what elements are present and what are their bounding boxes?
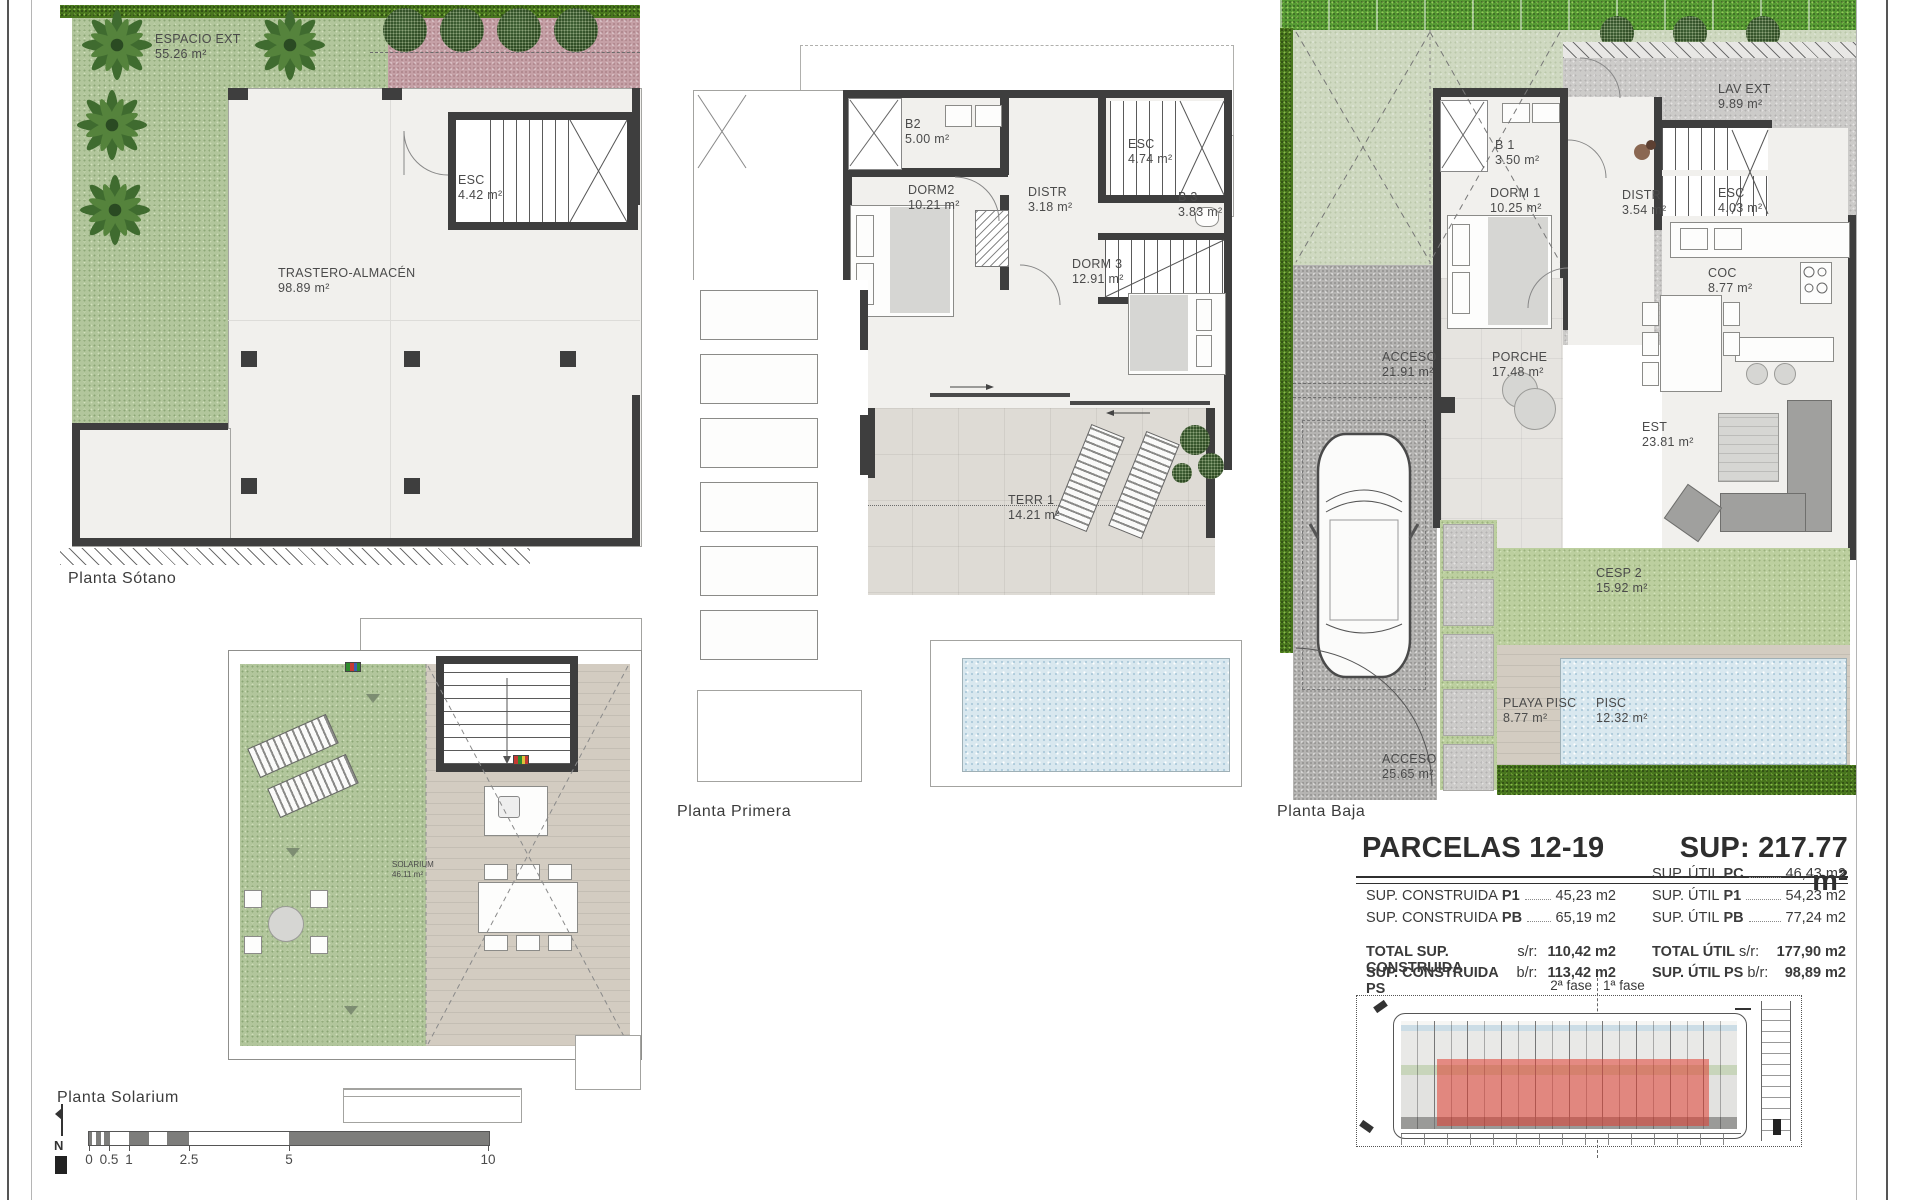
paver	[1443, 579, 1494, 626]
bush-icon	[440, 8, 484, 52]
stair-treads	[1662, 128, 1732, 170]
shower	[848, 98, 902, 170]
storage-box	[700, 418, 818, 468]
wall	[72, 423, 80, 545]
bush-icon	[383, 8, 427, 52]
phase-label-left: 2ª fase	[1520, 978, 1592, 993]
oven	[1714, 228, 1742, 250]
room-label: CESP 215.92 m²	[1596, 566, 1648, 596]
floor-joint	[228, 320, 640, 321]
stepping-stones	[1443, 524, 1494, 791]
chair	[310, 890, 328, 908]
scale-label: 1	[125, 1152, 133, 1167]
summary-totals-right: TOTAL ÚTIL s/r: 177,90 m2 SUP. ÚTIL PS b…	[1652, 944, 1846, 986]
context-box-line	[343, 1096, 520, 1097]
sliding-door	[1070, 401, 1210, 405]
column	[241, 478, 257, 494]
chair	[310, 936, 328, 954]
section-hatch	[60, 548, 530, 565]
context-box	[575, 1035, 641, 1090]
palm-icon	[73, 168, 157, 252]
neighbor-room	[693, 90, 845, 282]
room-label: DORM 312.91 m²	[1072, 257, 1124, 287]
driveway-dash	[1293, 383, 1437, 384]
paver	[1443, 689, 1494, 736]
site-glyph	[1373, 1000, 1388, 1013]
chair	[1642, 302, 1659, 326]
stair-landing	[1180, 101, 1224, 195]
scale-segment	[167, 1132, 189, 1145]
scale-label: 2.5	[180, 1152, 199, 1167]
wall	[1433, 278, 1441, 528]
room-label: B 13.50 m²	[1495, 138, 1539, 168]
context-box	[343, 1088, 522, 1123]
roof-strip	[360, 618, 642, 652]
gravel-dashed-line	[370, 52, 640, 53]
pillow	[856, 215, 874, 257]
wall	[382, 88, 402, 100]
bed-blanket	[1488, 217, 1548, 325]
summary-total-row: SUP. ÚTIL PS b/r: 98,89 m2	[1652, 965, 1846, 986]
plan-baja: LAV EXT9.89 m² B 13.50 m² DORM 110.25 m²…	[1280, 0, 1856, 800]
dining-table	[478, 882, 578, 933]
plan-primera: B25.00 m² DORM210.21 m² DISTR3.18 m² ESC…	[650, 35, 1245, 795]
summary-row: SUP. CONSTRUIDA P1 45,23 m2	[1366, 888, 1616, 910]
roof-hatch	[1563, 42, 1856, 58]
room-label: DISTR3.54 m²	[1622, 188, 1666, 218]
chair	[1642, 362, 1659, 386]
pool	[962, 658, 1230, 772]
scale-tick	[109, 1145, 110, 1151]
summary-row: SUP. CONSTRUIDA PB 65,19 m2	[1366, 910, 1616, 932]
room-label: DORM210.21 m²	[908, 183, 960, 213]
scale-tick	[488, 1145, 489, 1151]
room-label: TERR 114.21 m²	[1008, 493, 1060, 523]
bush-row	[383, 8, 598, 52]
pillow	[1452, 224, 1470, 266]
room-label: LAV EXT9.89 m²	[1718, 82, 1771, 112]
paver	[1443, 524, 1494, 571]
site-road-marker	[1773, 1119, 1781, 1135]
column	[560, 351, 576, 367]
room-label: B 33.83 m²	[1178, 190, 1222, 220]
plant-icon	[1172, 463, 1192, 483]
wall	[860, 290, 868, 350]
sheet-border-right-inner	[1856, 0, 1857, 1200]
chair	[484, 935, 508, 951]
summary-row: SUP. ÚTIL P1 54,23 m2	[1652, 888, 1846, 910]
chair	[244, 936, 262, 954]
room-label: TRASTERO-ALMACÉN98.89 m²	[278, 266, 415, 296]
shower	[1440, 100, 1488, 172]
sink-icon	[498, 796, 520, 818]
storage-boxes	[700, 290, 818, 660]
chair	[548, 864, 572, 880]
wall	[72, 538, 640, 546]
scale-segment	[96, 1132, 101, 1145]
marker-icon	[345, 662, 361, 672]
room-label: DORM 110.25 m²	[1490, 186, 1542, 216]
sheet-border-left-inner	[31, 0, 32, 1200]
site-arrow	[1735, 1008, 1751, 1010]
chair	[548, 935, 572, 951]
scale-segment	[104, 1132, 110, 1145]
paver	[1443, 744, 1494, 791]
sofa	[1720, 493, 1806, 532]
room-label: ESPACIO EXT55.26 m²	[155, 32, 241, 62]
column	[1441, 397, 1455, 413]
hob	[1800, 262, 1832, 304]
stair-landing	[1732, 128, 1768, 170]
wall	[1098, 98, 1106, 198]
plan-solarium: SOLARIUM46.11 m²	[226, 618, 640, 1123]
column	[241, 351, 257, 367]
paver	[1443, 634, 1494, 681]
summary-row: SUP. ÚTIL PB 77,24 m2	[1652, 910, 1846, 932]
chair	[1723, 302, 1740, 326]
site-unit	[1401, 1021, 1434, 1129]
hedge-bottom	[1497, 765, 1856, 795]
sliding-door	[930, 393, 1070, 397]
scale-bar: 0 0.5 1 2.5 5 10	[88, 1131, 490, 1146]
room-label: ESC4.03 m²	[1718, 186, 1762, 216]
scale-label: 5	[285, 1152, 293, 1167]
room-label: EST23.81 m²	[1642, 420, 1694, 450]
basement-floor-ext	[72, 428, 231, 547]
wall	[632, 395, 640, 545]
scale-segment	[89, 1132, 92, 1145]
stool	[1746, 363, 1768, 385]
chair	[244, 890, 262, 908]
storage-box	[700, 546, 818, 596]
room-label: SOLARIUM46.11 m²	[392, 860, 434, 879]
plant-icon	[1180, 425, 1210, 455]
phase-label-right: 1ª fase	[1603, 978, 1645, 993]
room-label: ESC4.42 m²	[458, 173, 502, 203]
floorplan-sheet: ESPACIO EXT55.26 m² ESC4.42 m² TRASTERO-…	[0, 0, 1920, 1200]
scale-segment	[129, 1132, 149, 1145]
scale-tick	[89, 1145, 90, 1151]
pillow	[1196, 335, 1212, 367]
room-label: PISC12.32 m²	[1596, 696, 1648, 726]
north-flag	[55, 1108, 62, 1120]
north-arrow: N	[48, 1100, 78, 1190]
room-label: DISTR3.18 m²	[1028, 185, 1072, 215]
wall	[1848, 215, 1856, 560]
site-plan	[1356, 995, 1802, 1147]
plan-caption-primera: Planta Primera	[677, 803, 791, 821]
room-label: ACCESO21.91 m²	[1382, 350, 1437, 380]
scale-label: 0	[85, 1152, 93, 1167]
wall	[1224, 90, 1232, 470]
room-label: ESC4.74 m²	[1128, 137, 1172, 167]
room-label: B25.00 m²	[905, 117, 949, 147]
bed-blanket	[1130, 295, 1188, 371]
marker-icon	[513, 755, 529, 765]
kitchen-island	[1735, 337, 1834, 362]
round-table	[1514, 388, 1556, 430]
room-label: COC8.77 m²	[1708, 266, 1752, 296]
wall	[1662, 120, 1772, 128]
washbasin	[975, 105, 1002, 127]
chair	[516, 864, 540, 880]
room-label: PLAYA PISC8.77 m²	[1503, 696, 1576, 726]
sink	[1680, 228, 1708, 250]
sheet-border-left	[7, 0, 9, 1200]
wall	[843, 90, 1232, 98]
floor-joint	[390, 88, 391, 545]
wall	[1098, 233, 1232, 240]
bush-icon	[554, 8, 598, 52]
bush-icon	[497, 8, 541, 52]
round-table	[268, 906, 304, 942]
scale-tick	[129, 1145, 130, 1151]
storage-box	[700, 610, 818, 660]
palm-icon	[75, 3, 159, 87]
summary-total-row: TOTAL ÚTIL s/r: 177,90 m2	[1652, 944, 1846, 965]
site-glyph	[1359, 1120, 1374, 1133]
summary-total-row: TOTAL SUP. CONSTRUIDA s/r: 110,42 m2	[1366, 944, 1616, 965]
rear-lawn	[1497, 548, 1850, 645]
plant-icon	[1198, 453, 1224, 479]
scale-label: 0.5	[100, 1152, 119, 1167]
sideboard	[1718, 413, 1779, 482]
plan-caption-baja: Planta Baja	[1277, 803, 1365, 821]
washbasin	[1502, 103, 1530, 123]
driveway-dash	[1293, 397, 1437, 398]
room-label: PORCHE17.48 m²	[1492, 350, 1547, 380]
sheet-border-right	[1886, 0, 1888, 1200]
chair	[1642, 332, 1659, 356]
summary-title: PARCELAS 12-19	[1362, 832, 1604, 865]
stair-treads	[444, 664, 570, 764]
chair	[516, 935, 540, 951]
wall	[228, 88, 248, 100]
wall	[860, 415, 868, 475]
north-letter: N	[54, 1138, 63, 1153]
washbasin	[1532, 103, 1560, 123]
scale-label: 10	[480, 1152, 495, 1167]
scale-tick	[189, 1145, 190, 1151]
pillow	[1452, 272, 1470, 314]
chair	[484, 864, 508, 880]
car-icon	[1308, 428, 1420, 683]
summary-row: SUP. ÚTIL PC 46,43 m2	[1652, 866, 1846, 888]
roof-garden	[240, 664, 426, 1046]
north-block	[55, 1156, 67, 1174]
chair	[1723, 332, 1740, 356]
summary-useful: SUP. ÚTIL PC 46,43 m2 SUP. ÚTIL P1 54,23…	[1652, 866, 1846, 932]
storage-box	[700, 354, 818, 404]
storage-box	[700, 482, 818, 532]
pillow	[1196, 299, 1212, 331]
site-parking-row	[1401, 1133, 1741, 1145]
plan-sotano: ESPACIO EXT55.26 m² ESC4.42 m² TRASTERO-…	[60, 5, 640, 590]
context-box	[697, 690, 862, 782]
wall	[72, 423, 228, 430]
plan-caption-sotano: Planta Sótano	[68, 570, 176, 588]
wall	[1437, 88, 1568, 97]
column	[404, 351, 420, 367]
storage-box	[700, 290, 818, 340]
dining-table	[1660, 295, 1722, 392]
scale-tick	[289, 1145, 290, 1151]
column	[404, 478, 420, 494]
palm-icon	[248, 3, 332, 87]
palm-icon	[70, 83, 154, 167]
summary-constructed: SUP. CONSTRUIDA P1 45,23 m2 SUP. CONSTRU…	[1366, 888, 1616, 932]
wardrobe	[975, 210, 1009, 267]
hedge-left	[1280, 28, 1293, 653]
vent-symbol	[366, 694, 380, 703]
highlight-parcels	[1437, 1059, 1709, 1126]
vent-symbol	[286, 848, 300, 857]
scale-segment	[289, 1132, 489, 1145]
bed-blanket	[890, 207, 950, 313]
stool	[1774, 363, 1796, 385]
room-label: ACCESO25.65 m²	[1382, 752, 1437, 782]
stair-treads	[490, 120, 570, 222]
vent-symbol	[344, 1006, 358, 1015]
